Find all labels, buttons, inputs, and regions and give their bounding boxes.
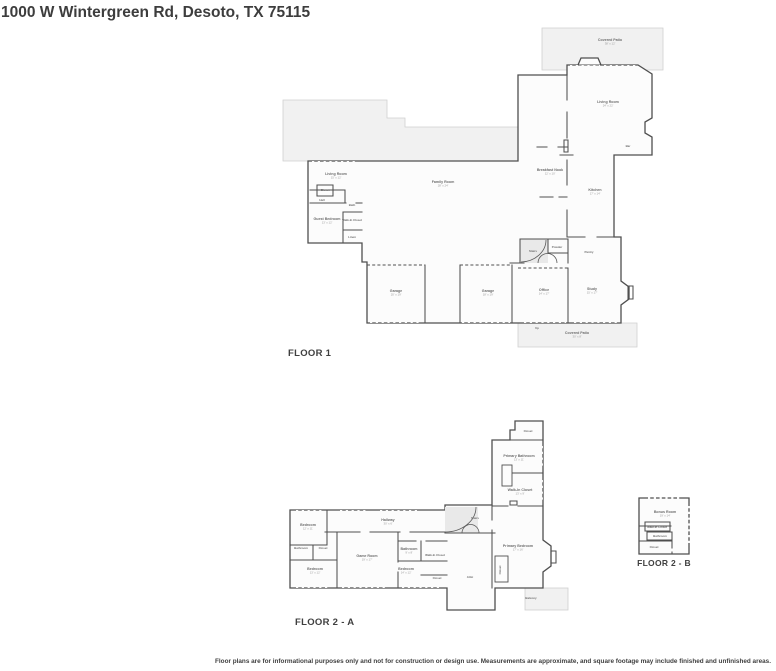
disclaimer-text: Floor plans are for informational purpos… bbox=[215, 658, 771, 665]
room-label: Pantry bbox=[585, 250, 594, 254]
room-label: Balcony bbox=[525, 596, 537, 600]
room-label: Stairs bbox=[471, 516, 479, 520]
room-label: Closet bbox=[433, 576, 442, 580]
room-label: Garage20' x 19' bbox=[390, 289, 402, 297]
room-label: Attic bbox=[467, 575, 474, 579]
room-label: Bath bbox=[349, 203, 356, 207]
room-label: Garage18' x 19' bbox=[482, 289, 494, 297]
floor2a-stair-area bbox=[445, 507, 478, 533]
floor2a-plan bbox=[290, 421, 568, 610]
floor1-patio-left bbox=[283, 100, 518, 161]
room-label: Bathroom bbox=[653, 534, 667, 538]
floor2a-shower-fixture bbox=[502, 465, 512, 486]
room-label: Closet bbox=[319, 546, 328, 550]
room-label: Closet bbox=[498, 566, 502, 575]
room-label: Study15' x 17' bbox=[587, 287, 598, 295]
room-label: Office14' x 17' bbox=[539, 288, 550, 296]
room-label: Walk-In Closet bbox=[647, 525, 667, 529]
floor-plan-canvas: Covered Patio38' x 12'Living Room24' x 2… bbox=[0, 0, 776, 671]
floor1-plan bbox=[283, 28, 663, 347]
floor1-patio-top-right bbox=[542, 28, 663, 70]
floor-plan-page: Covered Patio38' x 12'Living Room24' x 2… bbox=[0, 0, 776, 671]
room-label: Closet bbox=[650, 545, 659, 549]
room-label: Walk-In Closet bbox=[342, 218, 362, 222]
room-label: Kitchen17' x 14' bbox=[588, 188, 601, 196]
room-label: Walk-In Closet bbox=[425, 553, 445, 557]
floor2a-outline bbox=[290, 421, 551, 610]
floor2b-label: FLOOR 2 - B bbox=[637, 558, 691, 568]
room-label: Closet bbox=[321, 188, 330, 192]
room-label: Bathroom bbox=[294, 546, 308, 550]
room-label: Up bbox=[535, 326, 539, 330]
room-label: Hall bbox=[319, 198, 324, 202]
room-label: Linen bbox=[348, 235, 356, 239]
floor1-label: FLOOR 1 bbox=[288, 348, 332, 359]
page-title: 1000 W Wintergreen Rd, Desoto, TX 75115 bbox=[1, 4, 310, 21]
room-label: Closet bbox=[524, 429, 533, 433]
room-label: Stairs bbox=[529, 249, 537, 253]
floor2a-label: FLOOR 2 - A bbox=[295, 617, 354, 628]
room-label: Powder bbox=[552, 245, 563, 249]
